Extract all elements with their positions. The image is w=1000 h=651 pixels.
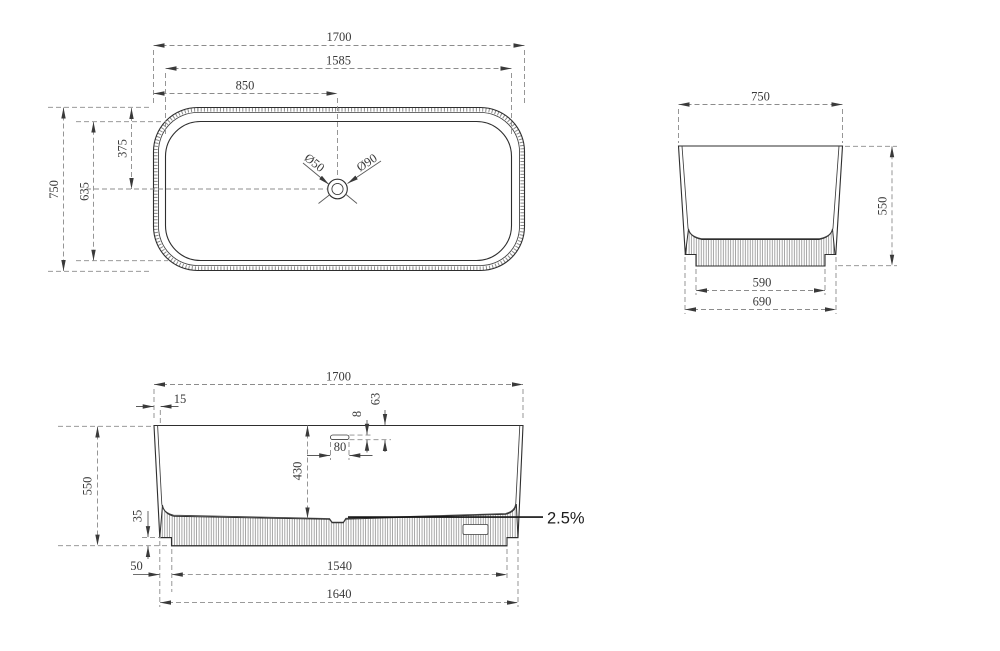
drawing-sheet: Ø50 Ø90 1700 1585 850 750	[0, 0, 1000, 651]
dim-side-overall-length: 1700	[154, 370, 523, 422]
dim-text: 550	[81, 477, 95, 496]
dim-drain-inner-diameter: Ø50	[302, 151, 328, 175]
overflow-slot	[331, 435, 350, 440]
drain-outer-circle	[328, 179, 348, 199]
dim-end-base-width: 590	[696, 269, 825, 295]
dim-text: 1700	[327, 30, 352, 44]
technical-drawing: Ø50 Ø90 1700 1585 850 750	[0, 0, 1000, 651]
dim-side-base-inset: 50	[130, 541, 172, 607]
dim-text: 690	[753, 295, 772, 309]
dim-side-bottom-length: 1640	[160, 541, 518, 607]
dim-text: 1640	[327, 587, 352, 601]
dim-text: 8	[350, 411, 364, 417]
dim-text: 80	[334, 440, 347, 454]
drain-leader-tail-right	[346, 194, 358, 204]
dim-text: 750	[47, 180, 61, 199]
dim-drain-outer-diameter: Ø90	[354, 151, 380, 174]
dim-text: 1540	[327, 559, 352, 573]
drain: Ø50 Ø90	[302, 151, 381, 204]
dim-plan-drain-from-top: 375	[86, 108, 327, 189]
dim-text: 850	[236, 79, 255, 93]
end-base-fluting	[685, 229, 835, 266]
dim-text: 430	[291, 462, 305, 481]
dim-text: 635	[78, 182, 92, 201]
rim-inner-band-line	[159, 113, 520, 266]
dim-text: 1700	[326, 370, 351, 384]
dim-end-overall-width: 750	[679, 90, 843, 144]
dim-side-inner-depth: 430	[291, 426, 308, 519]
slope-label: 2.5%	[547, 510, 585, 528]
dim-side-overall-height: 550	[58, 426, 168, 545]
dim-text: 375	[116, 139, 130, 158]
end-inner-wall	[682, 146, 839, 239]
plan-view: Ø50 Ø90 1700 1585 850 750	[47, 30, 525, 271]
base-access-recess	[463, 525, 488, 535]
dim-text: 35	[131, 510, 145, 523]
dim-text: 63	[369, 393, 383, 406]
dim-text: 550	[876, 197, 890, 216]
dim-end-overall-height: 550	[838, 146, 897, 265]
dim-text: 1585	[326, 54, 351, 68]
dim-side-rim-thickness: 15	[136, 392, 186, 424]
dim-text: 15	[174, 392, 187, 406]
side-view: 2.5% 1700 15 63 8	[58, 370, 585, 608]
dim-text: 50	[130, 559, 143, 573]
dim-text: 750	[751, 90, 770, 104]
basin-inner-rim	[166, 122, 512, 261]
drain-leader-tail-left	[319, 195, 331, 204]
dim-side-base-length: 1540	[172, 549, 507, 581]
dim-side-overflow-slot-height: 8	[350, 411, 374, 453]
dim-text: 590	[753, 276, 772, 290]
end-view: 750 550 590 690	[679, 90, 898, 315]
dim-plan-inner-length: 1585	[166, 54, 512, 138]
dim-side-overflow-from-top: 63	[350, 393, 392, 452]
drain-inner-circle	[332, 183, 343, 194]
dim-side-overflow-slot-width: 80	[307, 440, 373, 460]
dim-side-base-height: 35	[131, 510, 162, 559]
